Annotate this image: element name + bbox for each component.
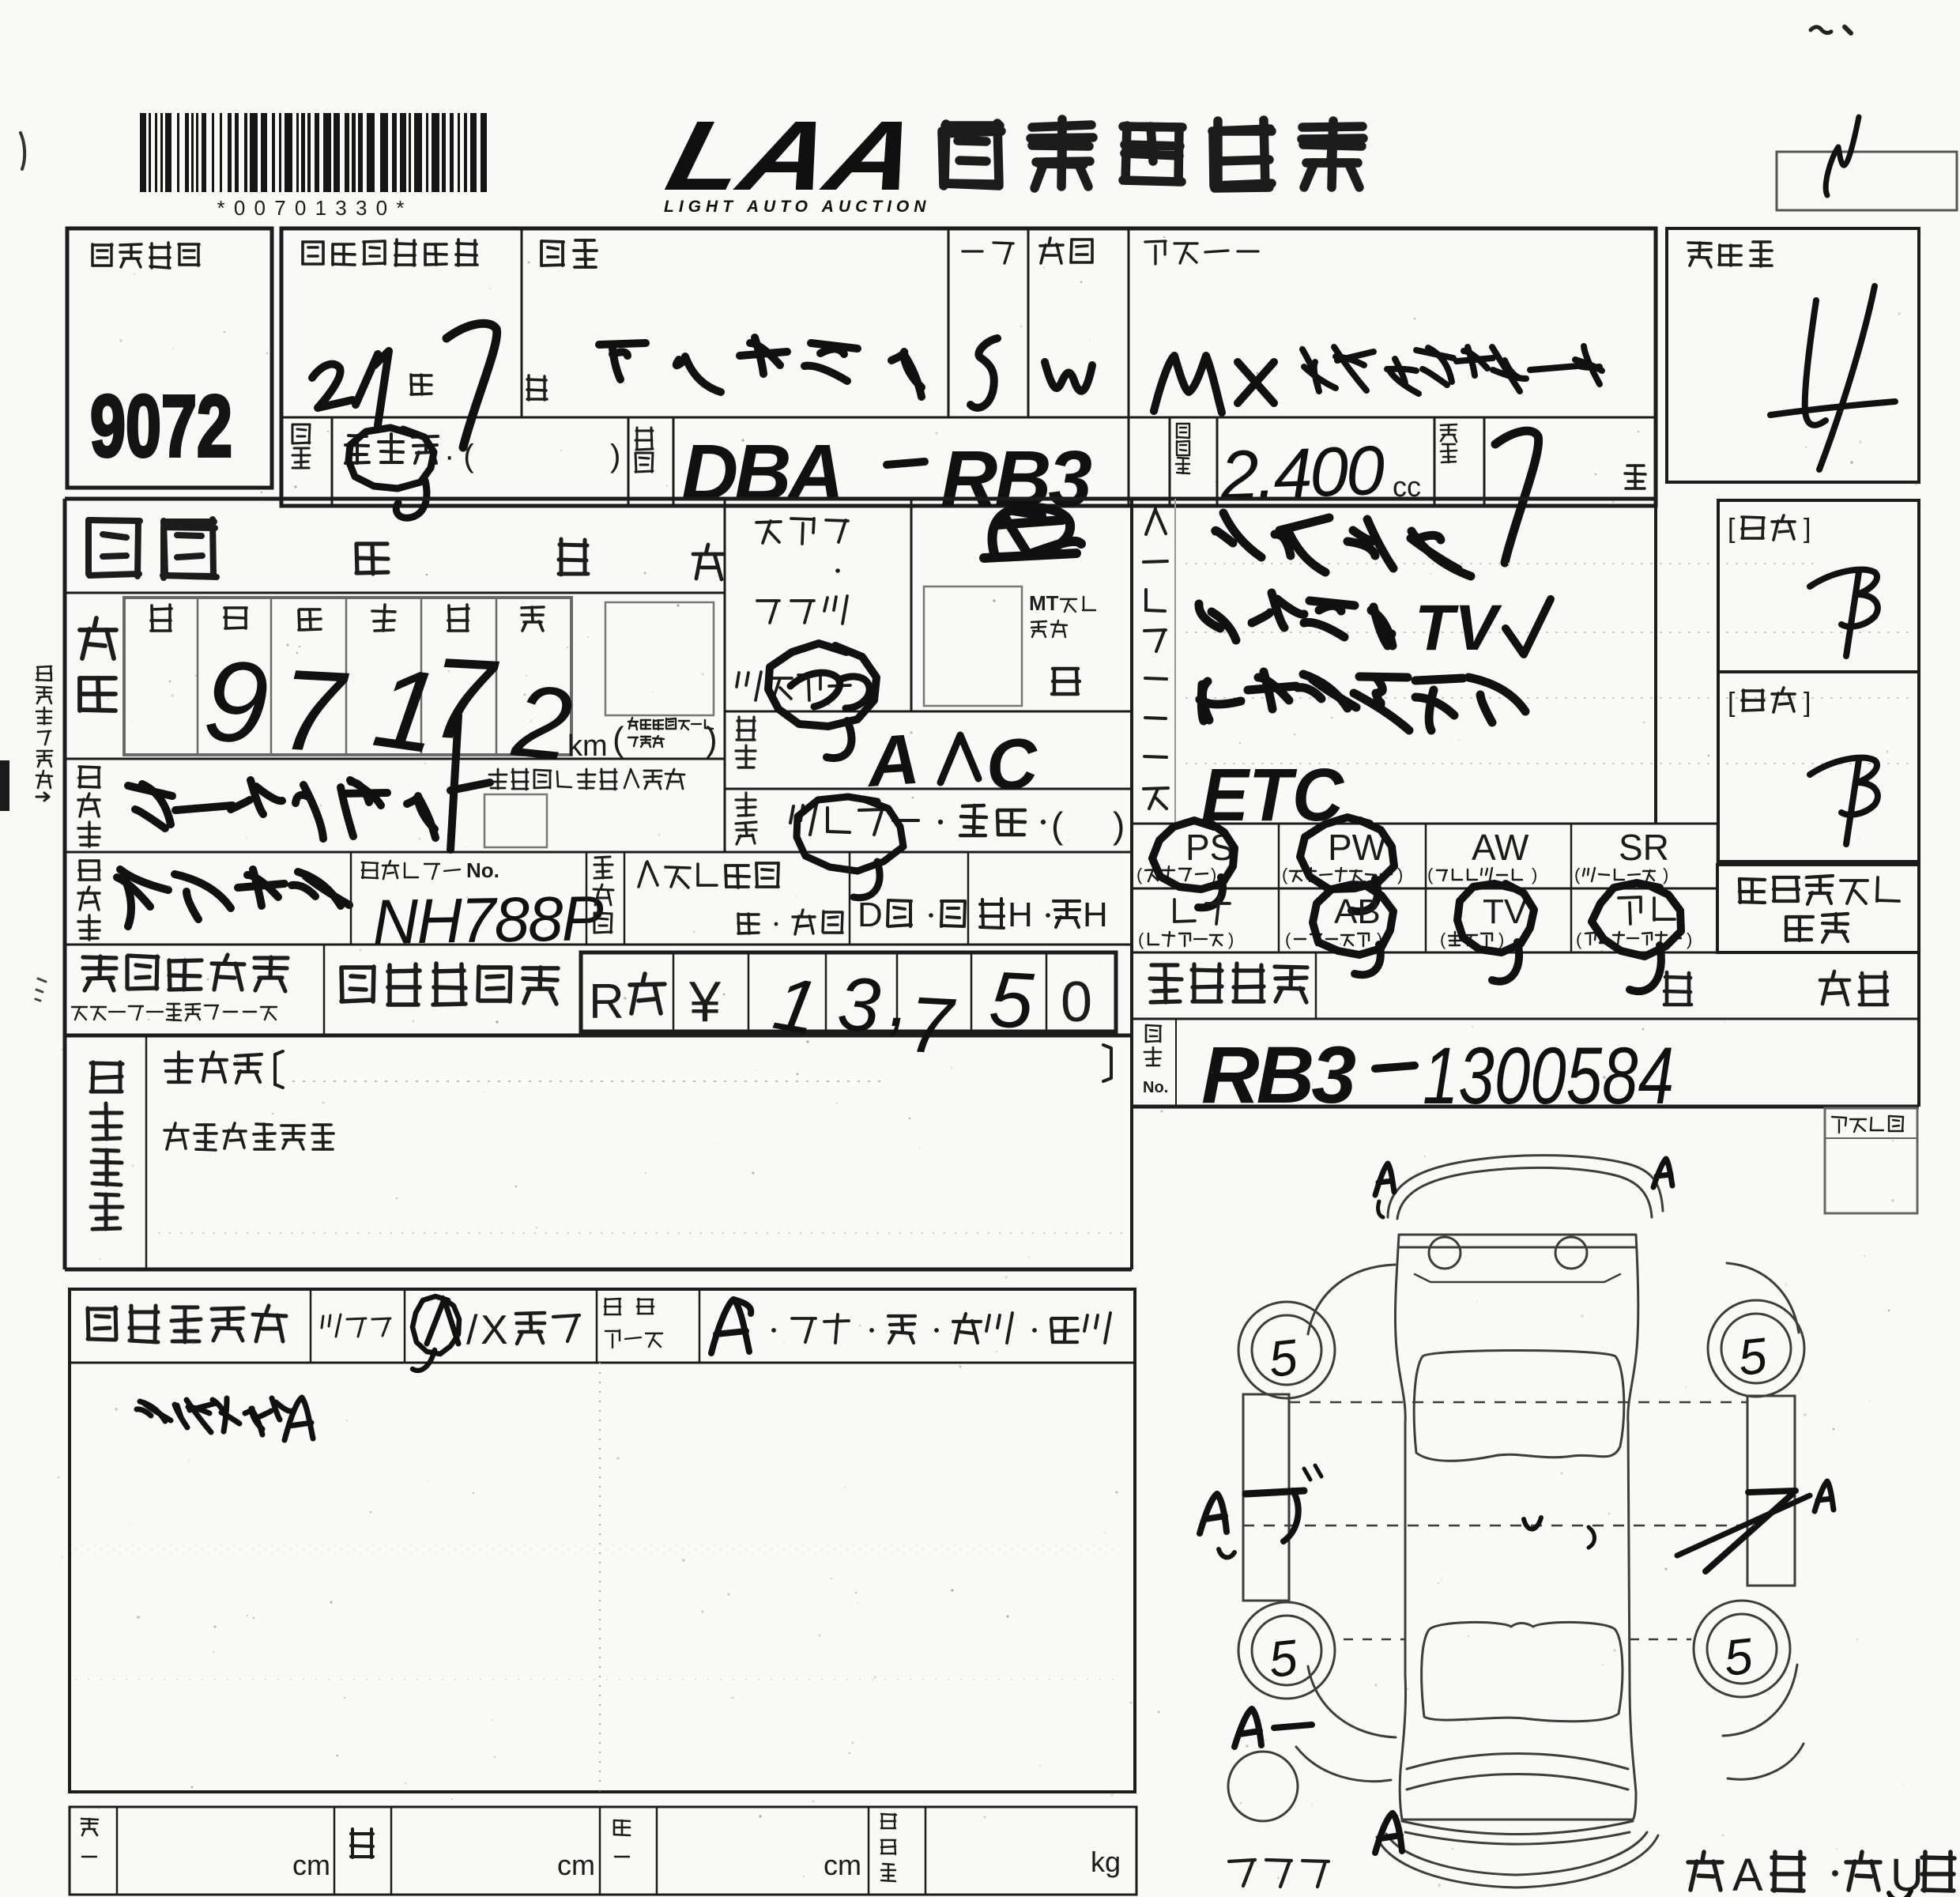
svg-text:): ) bbox=[706, 720, 718, 759]
svg-text:(: ( bbox=[1427, 865, 1434, 884]
svg-text:R: R bbox=[589, 975, 624, 1029]
svg-text:(: ( bbox=[1440, 930, 1446, 949]
svg-text:NH788P: NH788P bbox=[372, 883, 605, 957]
svg-text:D: D bbox=[857, 896, 883, 934]
svg-text:7: 7 bbox=[427, 633, 501, 764]
svg-text:cm: cm bbox=[292, 1849, 330, 1881]
svg-text:[: [ bbox=[1728, 514, 1736, 544]
svg-text:H: H bbox=[1083, 896, 1108, 934]
svg-text:No.: No. bbox=[1143, 1079, 1168, 1096]
svg-text:LIGHT AUTO AUCTION: LIGHT AUTO AUCTION bbox=[664, 198, 930, 216]
svg-text:RB3: RB3 bbox=[1201, 1030, 1355, 1120]
svg-text:): ) bbox=[1663, 865, 1668, 884]
svg-text:9072: 9072 bbox=[90, 378, 232, 475]
svg-text:(: ( bbox=[1574, 865, 1581, 884]
svg-text:): ) bbox=[1397, 865, 1403, 884]
svg-text:LAA: LAA bbox=[658, 100, 930, 211]
svg-text:A: A bbox=[863, 720, 922, 802]
svg-text:/: / bbox=[466, 1307, 478, 1353]
svg-text:): ) bbox=[1498, 930, 1504, 949]
svg-text:7: 7 bbox=[277, 645, 351, 776]
svg-text:cm: cm bbox=[824, 1849, 861, 1881]
svg-text:No.: No. bbox=[466, 858, 499, 882]
svg-text:DBA: DBA bbox=[681, 428, 841, 517]
svg-text:AW: AW bbox=[1472, 827, 1529, 868]
svg-text:3: 3 bbox=[835, 961, 884, 1048]
svg-text:(: ( bbox=[1051, 805, 1064, 846]
svg-text:1300584: 1300584 bbox=[1423, 1031, 1674, 1121]
svg-text:U: U bbox=[1890, 1850, 1924, 1897]
svg-text:): ) bbox=[1532, 865, 1537, 884]
svg-text:TV: TV bbox=[1483, 892, 1528, 931]
svg-text:(: ( bbox=[612, 720, 624, 759]
svg-text:]: ] bbox=[1804, 688, 1811, 718]
svg-text:9: 9 bbox=[200, 635, 273, 767]
svg-text:TV: TV bbox=[1415, 592, 1502, 664]
svg-text:A: A bbox=[1732, 1850, 1763, 1897]
svg-text:): ) bbox=[610, 439, 620, 473]
svg-text:MT: MT bbox=[1029, 591, 1059, 615]
svg-text:(: ( bbox=[1285, 930, 1291, 949]
svg-text:2: 2 bbox=[507, 662, 577, 783]
svg-text:): ) bbox=[1687, 930, 1692, 949]
svg-text:km: km bbox=[567, 730, 608, 763]
svg-text:0: 0 bbox=[1061, 971, 1092, 1034]
svg-text:7: 7 bbox=[906, 980, 958, 1071]
svg-text:(: ( bbox=[1282, 865, 1288, 884]
svg-text:· (: · ( bbox=[444, 439, 474, 473]
svg-text:(: ( bbox=[1138, 930, 1144, 949]
svg-text:cm: cm bbox=[557, 1849, 595, 1881]
svg-text:* 0 0 7 0 1 3 3 0 *: * 0 0 7 0 1 3 3 0 * bbox=[217, 196, 406, 220]
svg-text:): ) bbox=[1228, 930, 1234, 949]
svg-text:X: X bbox=[481, 1307, 508, 1353]
svg-text:,: , bbox=[888, 958, 910, 1043]
svg-text:): ) bbox=[1113, 805, 1125, 846]
svg-text:(: ( bbox=[1576, 930, 1582, 949]
svg-text:AB: AB bbox=[1334, 892, 1381, 931]
svg-text:5: 5 bbox=[987, 955, 1036, 1046]
svg-text:C: C bbox=[983, 724, 1042, 806]
svg-text:[: [ bbox=[1728, 688, 1736, 718]
svg-text:kg: kg bbox=[1091, 1846, 1121, 1878]
svg-text:¥: ¥ bbox=[688, 971, 722, 1034]
svg-text:H: H bbox=[1008, 896, 1033, 934]
svg-text:(: ( bbox=[1136, 865, 1143, 884]
svg-text:SR: SR bbox=[1619, 827, 1669, 868]
svg-text:2.400: 2.400 bbox=[1218, 431, 1386, 515]
